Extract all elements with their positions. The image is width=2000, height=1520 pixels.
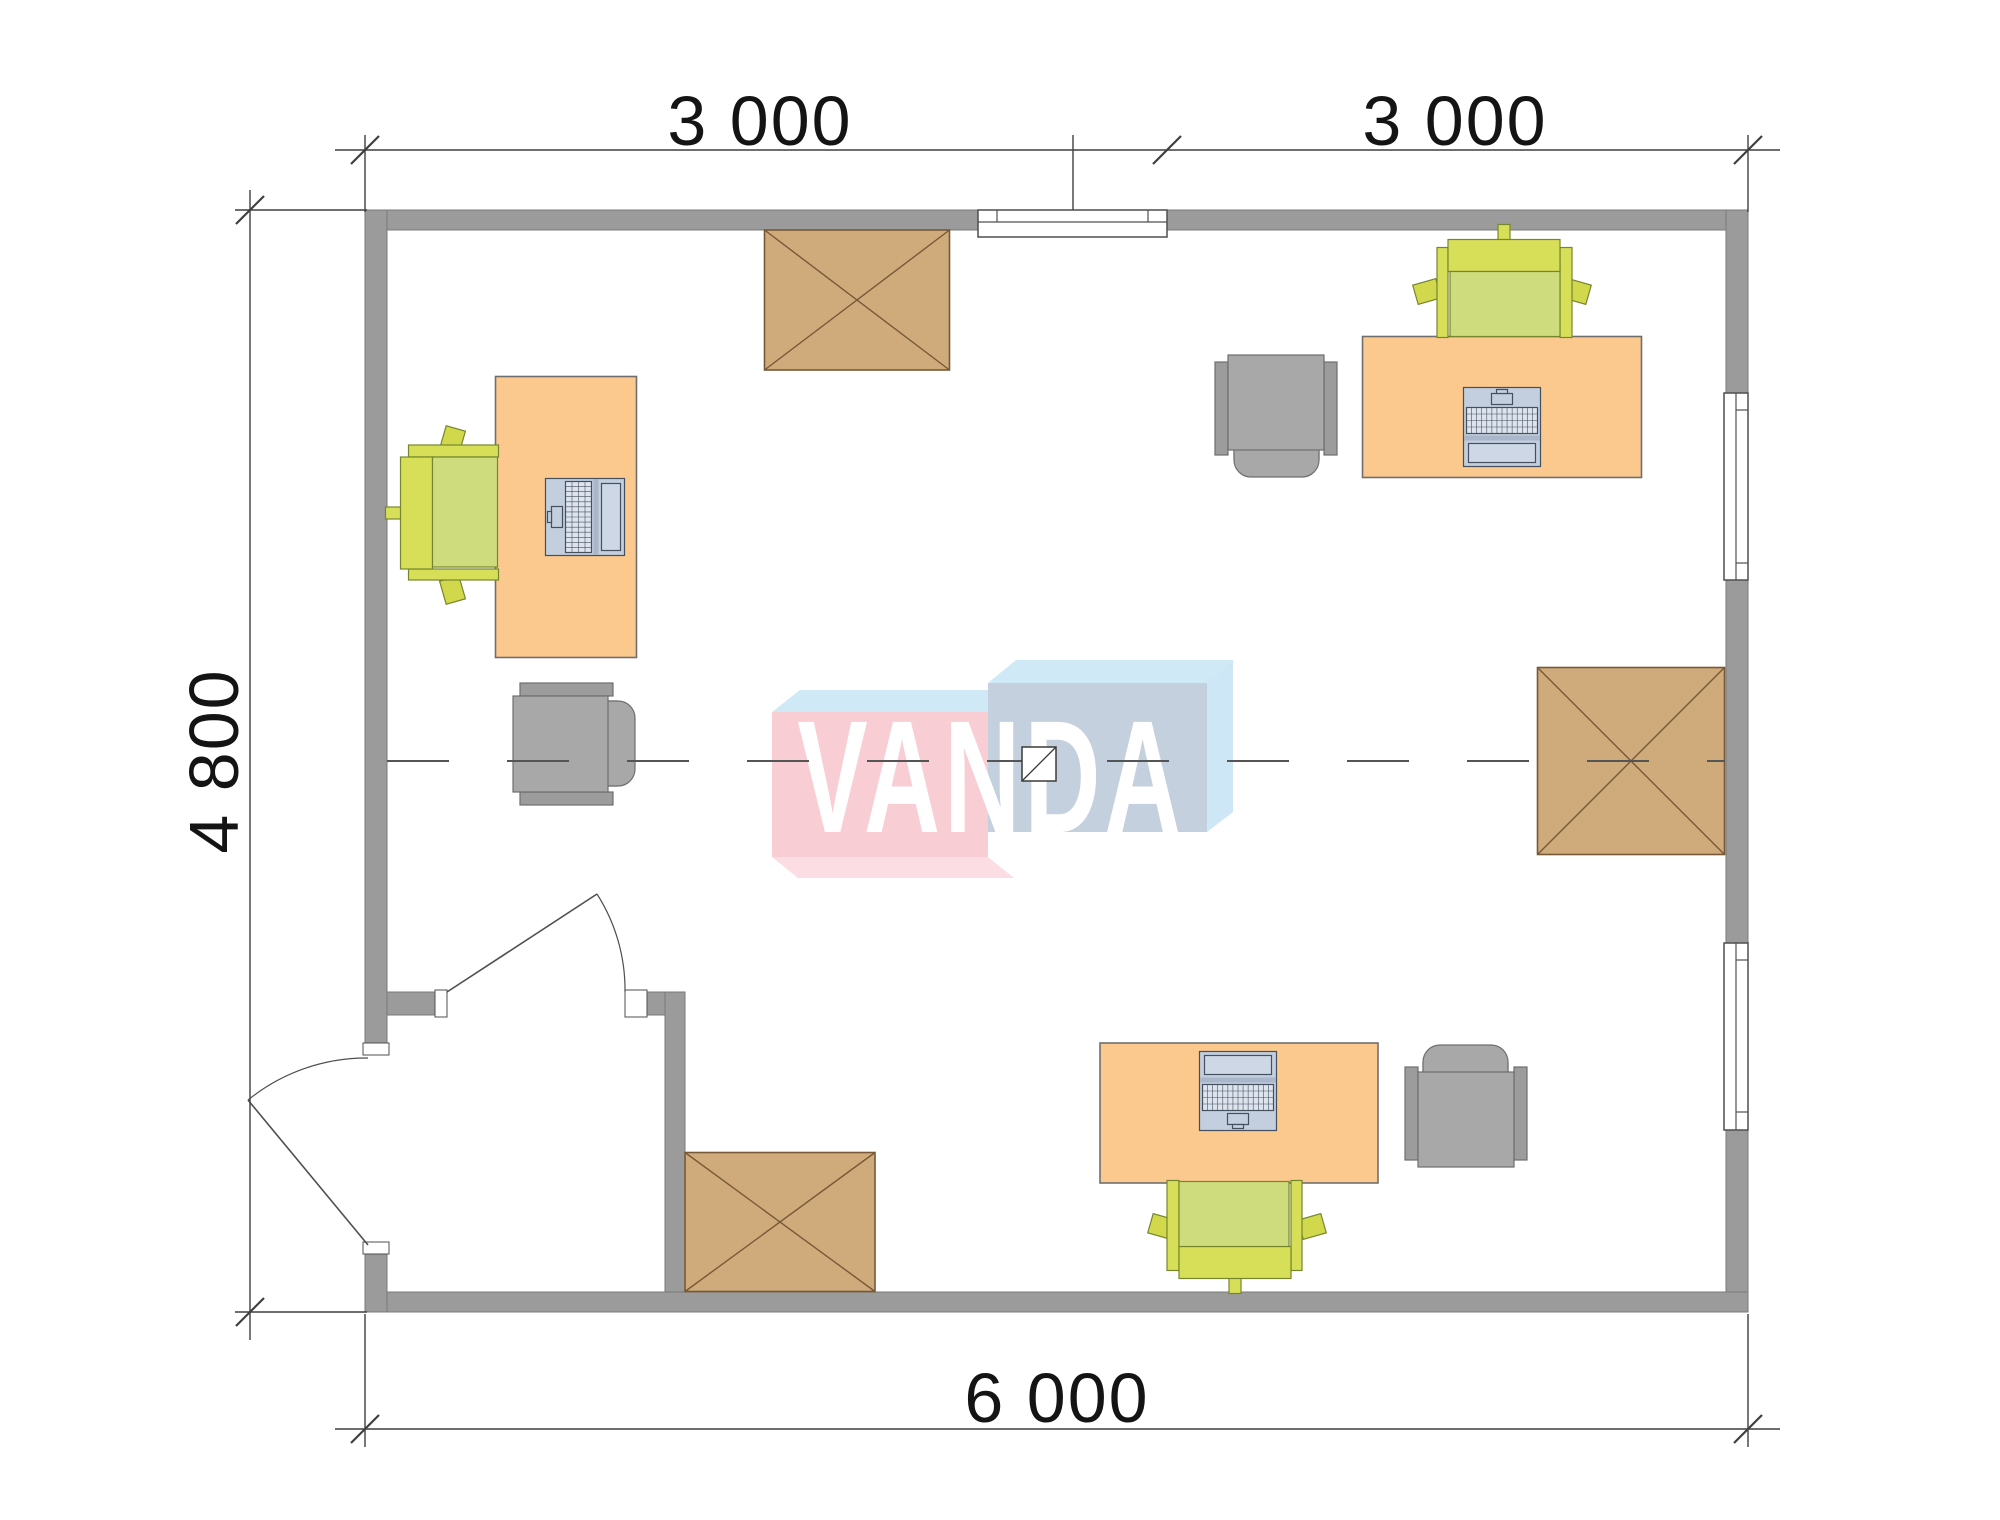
wall-vestibule-right — [665, 992, 685, 1292]
task-chair-3-seat — [1179, 1182, 1289, 1247]
visitor-chair-3-arm-right — [1405, 1067, 1418, 1160]
door-interior-jamb-1 — [625, 990, 647, 1017]
laptop-3 — [1200, 1052, 1277, 1131]
task-chair-1-head-tab — [386, 507, 402, 519]
wall-right-lower — [1726, 1130, 1748, 1312]
task-chair-3-backrest — [1179, 1247, 1291, 1279]
laptop-2-hinge — [1465, 436, 1540, 441]
wall-left-upper — [365, 210, 387, 1055]
laptop-1-touchpad-button — [548, 512, 552, 523]
cabinet-2 — [685, 1153, 875, 1292]
laptop-3-hinge — [1201, 1078, 1276, 1083]
center-axis-marker — [1022, 747, 1056, 781]
visitor-chair-1-arm-right — [520, 683, 613, 696]
floor-plan-drawing: VANDA 3 000 3 000 4 800 6 000 — [0, 0, 2000, 1520]
visitor-chair-3-seat — [1418, 1072, 1514, 1167]
wall-bottom — [365, 1292, 1748, 1312]
dimension-label-top-right: 3 000 — [1362, 82, 1547, 160]
laptop-2 — [1464, 388, 1541, 467]
wall-right-middle — [1726, 580, 1748, 943]
window-right-lower — [1724, 943, 1748, 1130]
window-top — [978, 210, 1167, 237]
laptop-2-touchpad-button — [1497, 390, 1508, 394]
task-chair-2-side-left — [1437, 248, 1448, 338]
window-top-frame — [978, 210, 1167, 237]
laptop-1-screen — [602, 484, 621, 551]
dimension-label-top-left: 3 000 — [667, 82, 852, 160]
window-right-upper — [1724, 393, 1748, 580]
laptop-3-screen — [1205, 1056, 1272, 1075]
task-chair-3-side-right — [1167, 1181, 1179, 1271]
task-chair-2-side-right — [1560, 248, 1572, 338]
logo-blue-right-face — [1207, 660, 1233, 832]
visitor-chair-1-seat — [513, 696, 608, 792]
visitor-chair-3-arm-left — [1514, 1067, 1527, 1160]
laptop-2-touchpad — [1492, 394, 1513, 405]
task-chair-2-head-tab — [1498, 225, 1510, 241]
door-interior-jamb-0 — [435, 990, 447, 1017]
laptop-1 — [546, 479, 625, 556]
floor-plan-page: VANDA 3 000 3 000 4 800 6 000 — [0, 0, 2000, 1520]
dimension-label-bottom: 6 000 — [964, 1359, 1149, 1437]
wall-top-left — [365, 210, 978, 230]
logo-blue-top-face — [988, 660, 1233, 683]
door-entrance-jamb-0 — [363, 1043, 389, 1055]
laptop-1-touchpad — [552, 507, 563, 528]
dimension-label-left: 4 800 — [175, 668, 253, 853]
visitor-chair-2-arm-left — [1215, 362, 1228, 455]
laptop-1-hinge — [594, 480, 599, 555]
vanda-watermark-text: VANDA — [797, 687, 1184, 866]
task-chair-1-side-left — [409, 569, 499, 580]
laptop-3-touchpad-button — [1233, 1125, 1244, 1129]
task-chair-2-backrest — [1448, 240, 1560, 272]
task-chair-1-side-right — [409, 445, 499, 457]
visitor-chair-1-arm-left — [520, 792, 613, 805]
task-chair-1-backrest — [401, 457, 433, 569]
visitor-chair-2-arm-right — [1324, 362, 1337, 455]
task-chair-1-seat — [433, 457, 498, 567]
laptop-3-touchpad — [1228, 1114, 1249, 1125]
laptop-2-screen — [1469, 444, 1536, 463]
wall-vestibule-left-stub — [387, 992, 435, 1015]
visitor-chair-2-seat — [1228, 355, 1324, 450]
wall-top-right — [1167, 210, 1748, 230]
task-chair-3-head-tab — [1229, 1278, 1241, 1294]
cabinet-1 — [765, 230, 950, 370]
task-chair-2-seat — [1450, 272, 1560, 337]
wall-right-upper — [1726, 210, 1748, 393]
task-chair-3-side-left — [1291, 1181, 1302, 1271]
